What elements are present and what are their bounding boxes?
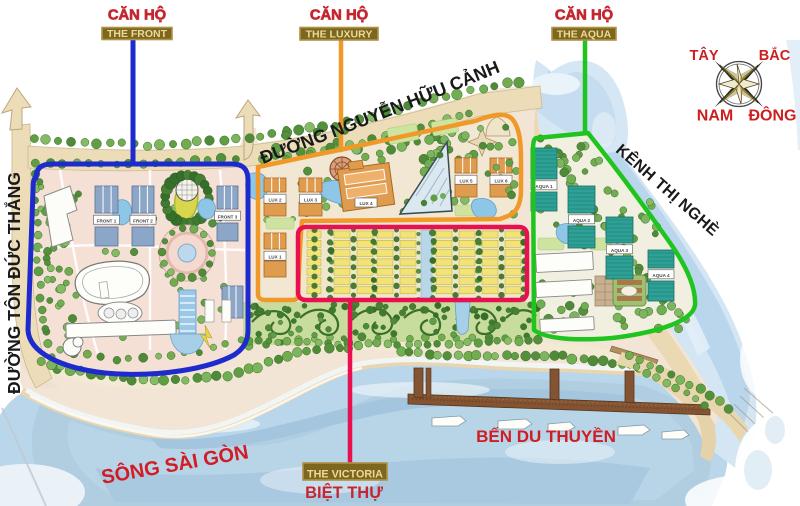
svg-text:LUX 5: LUX 5 [459,178,472,183]
svg-text:THE LUXURY: THE LUXURY [306,29,373,41]
svg-text:THE FRONT: THE FRONT [107,28,168,40]
svg-text:LUX 2: LUX 2 [268,197,281,202]
svg-text:AQUA 1: AQUA 1 [535,184,553,189]
svg-text:AQUA 3: AQUA 3 [611,248,629,253]
svg-text:CĂN HỘ: CĂN HỘ [310,6,368,24]
svg-text:ĐƯỜNG TÔN ĐỨC THẮNG: ĐƯỜNG TÔN ĐỨC THẮNG [3,172,24,394]
svg-text:LUX 1: LUX 1 [268,254,281,259]
svg-text:FRONT 1: FRONT 1 [97,218,117,223]
svg-text:THE AQUA: THE AQUA [557,29,612,41]
svg-text:ĐÔNG: ĐÔNG [749,106,797,125]
svg-text:NAM: NAM [697,108,733,125]
svg-text:CĂN HỘ: CĂN HỘ [555,6,613,24]
svg-text:LUX 3: LUX 3 [304,197,317,202]
svg-text:TÂY: TÂY [690,46,719,64]
svg-text:BIỆT THỰ: BIỆT THỰ [305,483,383,502]
svg-text:CĂN HỘ: CĂN HỘ [108,6,166,24]
svg-text:AQUA 4: AQUA 4 [652,273,670,278]
svg-text:BẮC: BẮC [759,46,791,64]
svg-text:AQUA 2: AQUA 2 [573,218,591,223]
svg-text:BẾN DU THUYỀN: BẾN DU THUYỀN [476,427,616,446]
svg-text:LUX 4: LUX 4 [359,201,372,206]
svg-text:FRONT 3: FRONT 3 [218,214,238,219]
svg-text:LUX 6: LUX 6 [494,178,507,183]
svg-text:FRONT 2: FRONT 2 [133,218,153,223]
svg-text:THE VICTORIA: THE VICTORIA [307,469,383,481]
